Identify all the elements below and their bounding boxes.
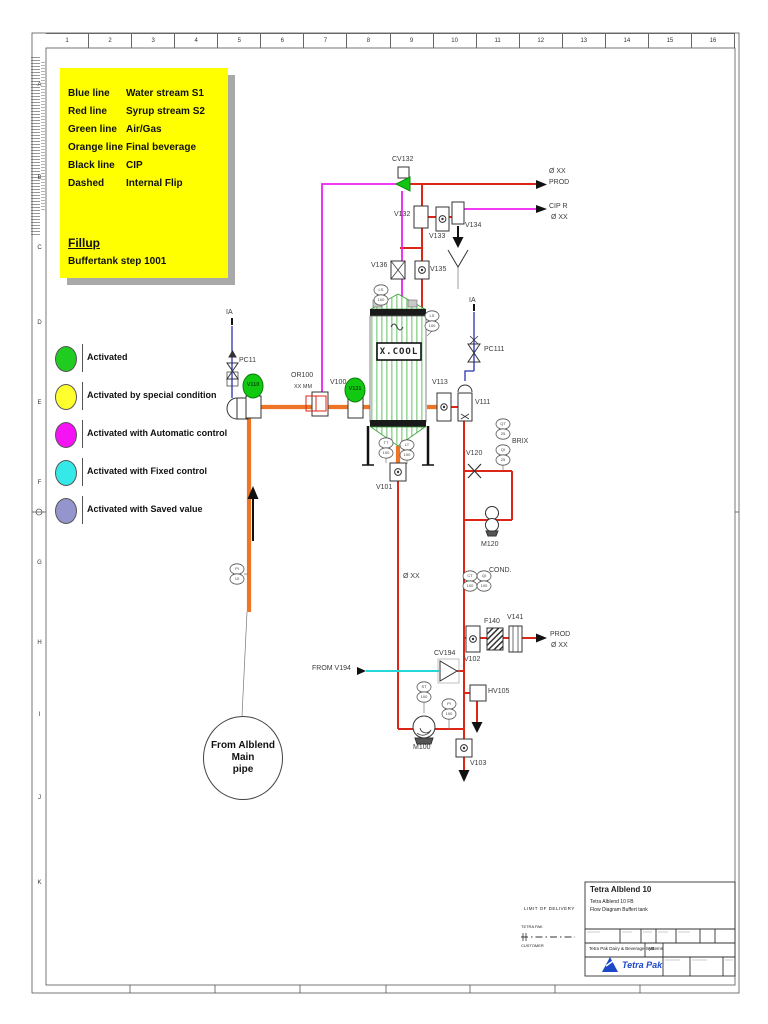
ruler-number: 11 [477,33,520,48]
pump-m100 [413,716,435,744]
valve-cv132-open-state [396,177,410,191]
instrument-num: 100 [416,694,432,699]
label-prod-bottom: PROD [550,631,570,639]
instrument-num: 25 [495,457,511,462]
v134-drain-arrow-icon [453,237,464,248]
valves-and-fittings [227,167,522,757]
ruler-number: 3 [132,33,175,48]
valve-v141 [509,626,522,652]
legend-line-name: Black line [68,160,115,171]
ruler-number: 7 [304,33,347,48]
label-state-v110: V110 [242,382,264,388]
row-letter: I [33,712,46,718]
label-m100: M100 [413,744,431,752]
label-from-v194: FROM V194 [312,665,351,673]
label-cip-r: CIP R [549,203,568,211]
label-v135: V135 [430,266,446,274]
instrument-num: 10 [229,576,245,581]
instrument-tag: LT [399,442,415,447]
ruler-number: 1 [46,33,89,48]
status-dot [55,498,77,524]
label-f140: F140 [484,618,500,626]
divider [82,496,83,524]
label-cv194: CV194 [434,650,455,658]
legend-line-desc: Water stream S1 [126,88,204,99]
row-letter: J [33,795,46,801]
label-brix: BRIX [512,438,528,446]
row-letter: G [33,560,46,566]
instrument-num: 100 [476,583,492,588]
label-v101: V101 [376,484,392,492]
limit-of-delivery-customer: CUSTOMER [521,943,544,948]
legend-line-desc: Air/Gas [126,124,162,135]
divider [82,420,83,448]
from-v194-arrow-icon [357,667,366,675]
legend-line-name: Green line [68,124,117,135]
valve-v110 [246,396,261,418]
valve-cv194 [440,661,457,681]
ruler-number: 14 [606,33,649,48]
margin-fine-print-2 [41,60,45,210]
label-v103: V103 [470,760,486,768]
legend-row: Black line CIP [60,160,228,177]
valve-v134 [452,202,464,224]
label-or100: OR100 [291,372,313,380]
instrument-tag: LS [424,313,440,318]
legend-row: Orange line Final beverage [60,142,228,159]
row-letter: E [33,400,46,406]
title-block-company-suffix: AB [648,946,654,951]
ruler-number: 2 [89,33,132,48]
cip-return-arrow-icon [536,205,547,213]
instrument-tag: QT [495,421,511,426]
label-ia-left: IA [226,309,233,317]
valve-v132 [414,206,428,228]
status-dot [55,384,77,410]
pipe-end-cap [227,398,237,419]
label-v102: V102 [464,656,480,664]
valve-hv105 [470,685,486,701]
legend-row: Dashed Internal Flip [60,178,228,195]
status-label: Activated by special condition [87,390,217,400]
label-pc11: PC11 [239,357,256,365]
divider [82,458,83,486]
instrument-num: 100 [424,323,440,328]
row-letter: K [33,880,46,886]
label-or100-size: XX MM [294,384,312,390]
label-dia-xx-bottom: Ø XX [551,642,568,650]
pump-m120 [486,507,499,537]
instrument-tag: PI [229,566,245,571]
legend-line-name: Red line [68,106,107,117]
limit-of-delivery-tetrapak: TETRA PAK [521,924,543,929]
legend-line-name: Blue line [68,88,110,99]
legend-line-name: Orange line [68,142,123,153]
instrument-num: 100 [378,450,394,455]
title-block-product: Tetra Alblend 10 [590,885,651,894]
status-dot [55,346,77,372]
limit-of-delivery-line [521,933,575,941]
instrument-tag: QI [495,447,511,452]
divider [82,382,83,410]
line-color-legend: Blue line Water stream S1 Red line Syrup… [60,68,228,278]
label-v132: V132 [394,211,410,219]
instrument-num: 25 [495,431,511,436]
hv105-drain-arrow-icon [472,722,483,733]
label-pc111: PC111 [484,346,504,354]
legend-line-desc: CIP [126,160,143,171]
prod-out-bottom-arrow-icon [536,634,547,643]
ruler-number: 10 [434,33,477,48]
legend-line-desc: Syrup stream S2 [126,106,205,117]
label-dia-xx-top: Ø XX [549,168,566,176]
legend-line-desc: Final beverage [126,142,196,153]
ruler-number: 15 [649,33,692,48]
instrument-tag: ST [416,684,432,689]
label-cv132: CV132 [392,156,413,164]
legend-line-desc: Internal Flip [126,178,183,189]
from-alblend-main-pipe-balloon: From Alblend Main pipe [203,716,283,800]
instrument-num: 100 [441,711,457,716]
ruler-number: 9 [391,33,434,48]
margin-fine-print [31,55,40,235]
valve-actuator-dome [458,385,472,392]
filter-f140 [487,628,503,650]
ruler-number: 13 [563,33,606,48]
ruler-number: 8 [347,33,390,48]
buffer-tank [362,294,434,465]
divider [82,344,83,372]
status-dot [55,460,77,486]
instrument-num: 100 [373,297,389,302]
legend-row: Green line Air/Gas [60,124,228,141]
legend-line-name: Dashed [68,178,104,189]
label-tank-xcool: X.COOL [377,344,421,360]
row-letter: F [33,480,46,486]
status-label: Activated with Automatic control [87,428,227,438]
label-cond: COND. [489,567,512,575]
balloon-text-line2: pipe [204,764,282,776]
legend-step-title: Fillup [68,236,100,250]
row-letter: C [33,245,46,251]
label-prod-top: PROD [549,179,569,187]
ruler-number: 5 [218,33,261,48]
tetra-pak-logo-icon [602,957,618,972]
drain-funnel [448,250,468,267]
label-v111: V111 [475,399,490,407]
status-label: Activated with Saved value [87,504,203,514]
balloon-text-line1: From Alblend Main [204,740,282,764]
row-letter: H [33,640,46,646]
label-dia-xx-cip: Ø XX [551,214,568,222]
ruler-number: 4 [175,33,218,48]
label-ia-right: IA [469,297,476,305]
label-m120: M120 [481,541,499,549]
ruler-number: 6 [261,33,304,48]
legend-row: Red line Syrup stream S2 [60,106,228,123]
label-v134: V134 [465,222,481,230]
label-state-v131: V131 [344,386,366,392]
instrument-num: 100 [399,452,415,457]
instrument-tag: TT [378,440,394,445]
status-label: Activated with Fixed control [87,466,207,476]
valve-cv132-body [398,167,409,178]
tetra-pak-logo-text: Tetra Pak [622,960,662,970]
label-hv105: HV105 [488,688,509,696]
row-letter: D [33,320,46,326]
prod-out-arrow-icon [536,180,547,189]
ruler-number: 16 [692,33,735,48]
status-dot [55,422,77,448]
pid-flow-diagram-sheet: 12345678910111213141516 ABCDEFGHIJK Blue… [0,0,768,1024]
label-v141: V141 [507,614,523,622]
ruler-number: 12 [520,33,563,48]
title-block-doc: Flow Diagram Buffert tank [590,907,648,913]
title-block-subtitle: Tetra Alblend 10 FB [590,899,634,905]
status-label: Activated [87,352,128,362]
label-v113: V113 [432,379,448,387]
label-v120: V120 [466,450,482,458]
legend-step-subtitle: Buffertank step 1001 [68,256,166,267]
instrument-tag: PI [441,701,457,706]
label-v136: V136 [371,262,387,270]
pipe-cip-return-magenta [322,184,537,392]
instrument-tag: LS [373,287,389,292]
legend-row: Blue line Water stream S1 [60,88,228,105]
label-v133: V133 [429,233,445,241]
v103-drain-arrow-icon [459,770,470,782]
instrument-tag: QI [476,573,492,578]
limit-of-delivery-title: LIMIT OF DELIVERY [524,906,575,911]
ruler-top: 12345678910111213141516 [46,33,735,48]
label-dia-xx-mid: Ø XX [403,573,420,581]
